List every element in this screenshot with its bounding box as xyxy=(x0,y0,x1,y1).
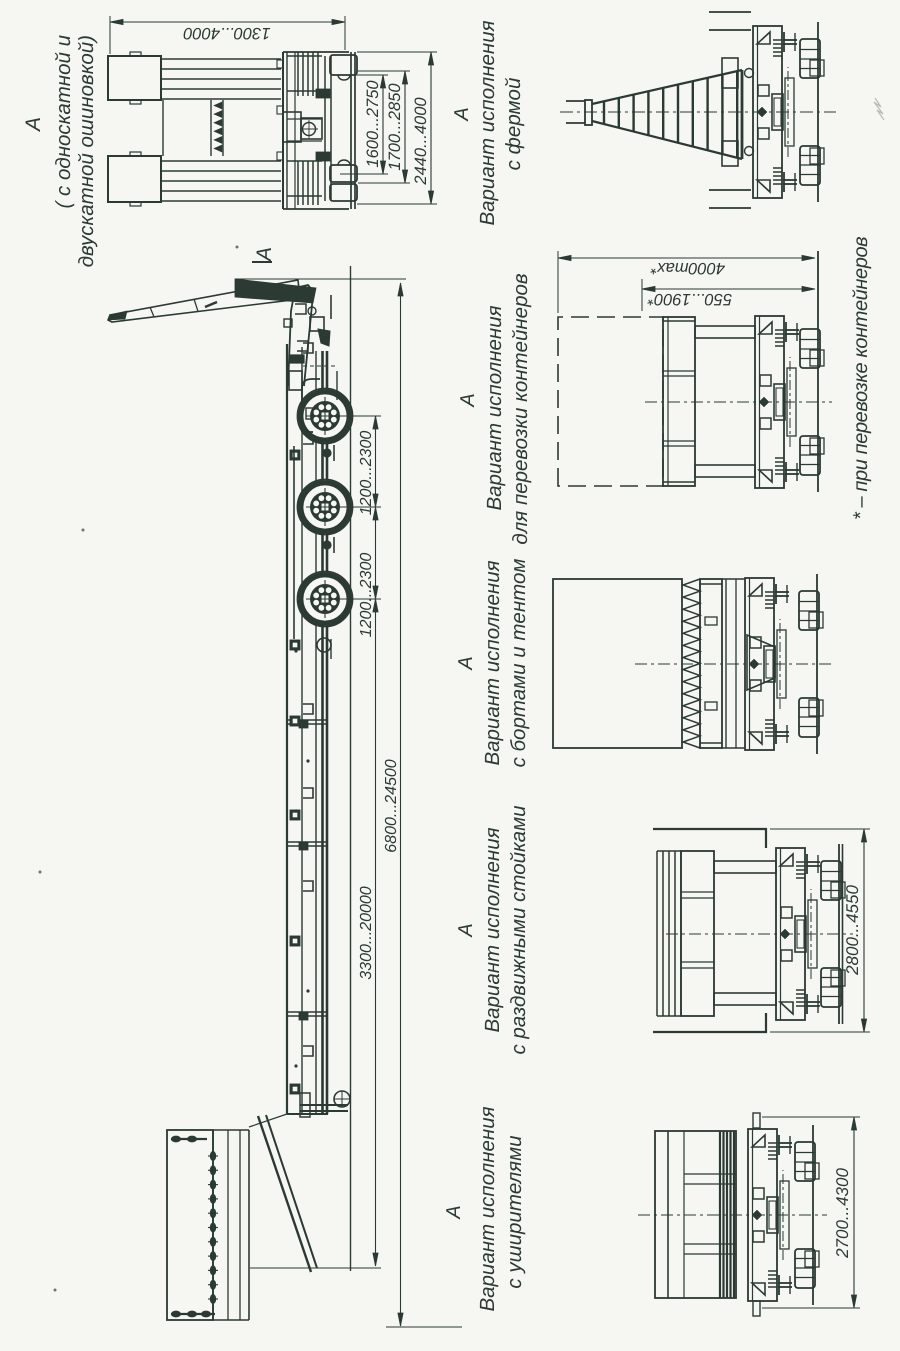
svg-text:А: А xyxy=(443,1205,465,1219)
svg-text:550...1900*: 550...1900* xyxy=(647,290,732,308)
svg-text:А: А xyxy=(455,656,477,670)
svg-text:с уширителями: с уширителями xyxy=(503,1135,526,1288)
svg-text:двускатной ошиновкой): двускатной ошиновкой) xyxy=(75,35,98,267)
svg-text:с бортами и тентом: с бортами и тентом xyxy=(507,559,530,768)
svg-text:Вариант исполнения: Вариант исполнения xyxy=(483,305,506,510)
svg-text:А: А xyxy=(455,923,477,937)
svg-text:* – при перевозке контейнеров: * – при перевозке контейнеров xyxy=(850,237,872,520)
svg-text:( с односкатной и: ( с односкатной и xyxy=(52,35,75,208)
svg-text:1600...2750: 1600...2750 xyxy=(364,80,382,168)
svg-text:2700...4300: 2700...4300 xyxy=(833,1168,852,1259)
svg-text:6800...24500: 6800...24500 xyxy=(383,759,400,853)
svg-text:с раздвижными стойками: с раздвижными стойками xyxy=(507,805,530,1054)
svg-text:А: А xyxy=(253,247,276,263)
svg-text:3300...20000: 3300...20000 xyxy=(358,886,375,980)
svg-text:для перевозки контейнеров: для перевозки контейнеров xyxy=(509,273,532,544)
svg-text:1300...4000: 1300...4000 xyxy=(183,24,271,42)
svg-text:1200...2300: 1200...2300 xyxy=(358,431,375,516)
svg-text:Вариант исполнения: Вариант исполнения xyxy=(476,20,499,225)
svg-text:А: А xyxy=(22,117,45,133)
svg-text:2440...4000: 2440...4000 xyxy=(412,97,430,186)
svg-text:1700...2850: 1700...2850 xyxy=(386,83,404,171)
svg-text:Вариант исполнения: Вариант исполнения xyxy=(481,827,504,1032)
svg-text:Вариант исполнения: Вариант исполнения xyxy=(481,560,504,765)
svg-text:Вариант исполнения: Вариант исполнения xyxy=(476,1106,499,1311)
svg-text:А: А xyxy=(457,393,479,407)
svg-text:2800...4550: 2800...4550 xyxy=(843,885,862,976)
svg-text:А: А xyxy=(451,107,473,121)
svg-text:1200...2300: 1200...2300 xyxy=(358,553,375,638)
svg-text:4000max*: 4000max* xyxy=(650,259,725,277)
svg-text:с фермой: с фермой xyxy=(502,78,525,171)
